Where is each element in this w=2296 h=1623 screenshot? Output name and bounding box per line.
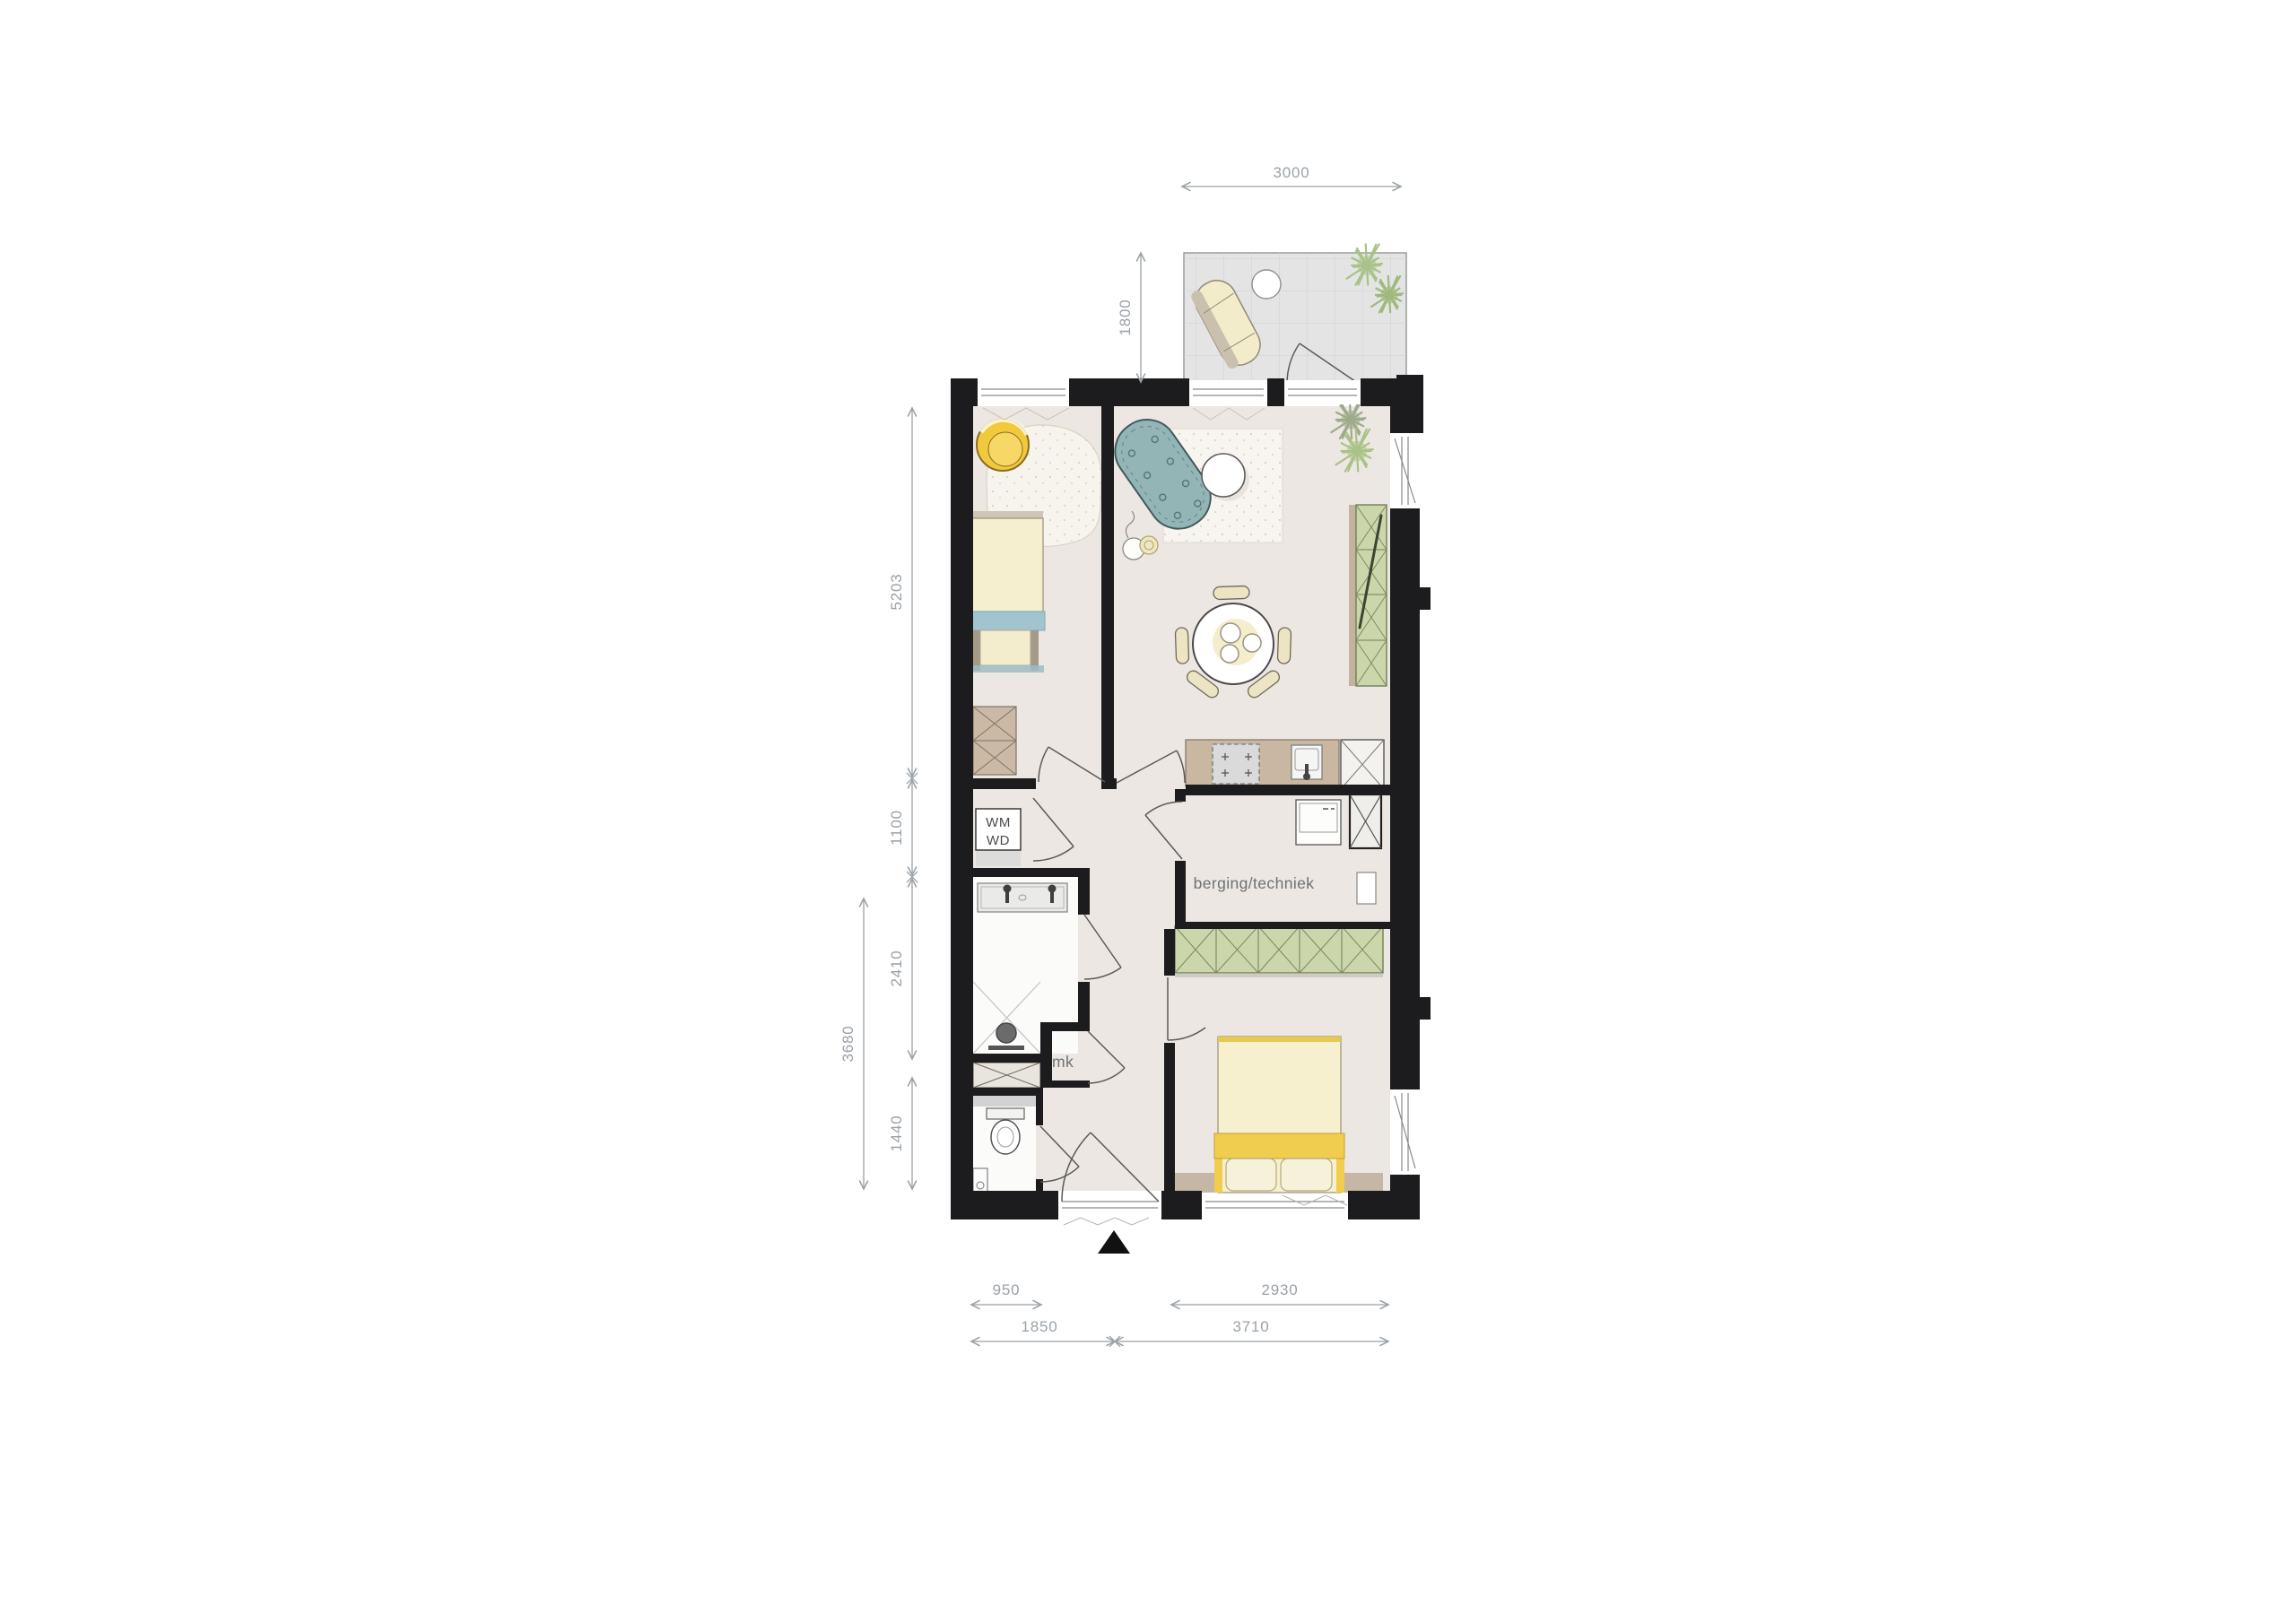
hand-basin-icon bbox=[973, 1168, 987, 1192]
dimension-label: 1800 bbox=[1117, 299, 1134, 335]
toilet-bowl-icon bbox=[991, 1120, 1020, 1154]
dimension-left-upper: 5203 bbox=[888, 408, 912, 777]
balcony-side-table bbox=[1252, 270, 1281, 299]
bedroom2-window-east bbox=[1392, 1089, 1418, 1175]
radiator-icon bbox=[1357, 872, 1376, 904]
bedroom1-bed bbox=[969, 511, 1045, 673]
wall-living-south bbox=[1186, 785, 1390, 795]
utility-hatch bbox=[973, 1063, 1040, 1088]
dimension-label: 1850 bbox=[1021, 1318, 1057, 1335]
coffee-table bbox=[1202, 454, 1245, 497]
dimension-bedroom-total: 3710 bbox=[1115, 1318, 1388, 1341]
floor-plan-drawing: WM WD bbox=[0, 0, 2296, 1623]
shaft-icon bbox=[1350, 794, 1381, 848]
tall-cabinet bbox=[1349, 505, 1387, 686]
washer-dryer-label: WD bbox=[987, 833, 1010, 848]
dimension-balcony-depth: 1800 bbox=[1117, 253, 1141, 382]
dimension-label: 3710 bbox=[1232, 1318, 1269, 1335]
bedroom1-wardrobe bbox=[973, 707, 1016, 775]
wall-west bbox=[951, 378, 973, 1219]
shower-head-icon bbox=[996, 1023, 1016, 1043]
wall-south bbox=[951, 1191, 1058, 1219]
pillow bbox=[1226, 1159, 1276, 1191]
wall-storage-south bbox=[1175, 922, 1390, 929]
dimension-left-toilet: 1440 bbox=[888, 1078, 912, 1189]
north-arrow-icon bbox=[1098, 1230, 1130, 1254]
bedroom2-wardrobe bbox=[1175, 926, 1383, 977]
appliance-icon bbox=[1296, 800, 1341, 845]
dimension-label: 3000 bbox=[1273, 164, 1309, 181]
wall-bathroom-north bbox=[973, 868, 1090, 877]
dimension-left-bathroom: 2410 bbox=[888, 879, 912, 1059]
balcony-door bbox=[1284, 380, 1361, 404]
bathroom-sink bbox=[978, 883, 1067, 912]
dimension-label: 2930 bbox=[1261, 1281, 1298, 1298]
bedroom2-bed bbox=[1214, 1037, 1344, 1193]
wall-bedroom1-living bbox=[1101, 406, 1114, 783]
living-window-east bbox=[1392, 433, 1418, 508]
dimension-balcony-width: 3000 bbox=[1182, 164, 1401, 187]
washing-machine-label: WM bbox=[986, 815, 1011, 830]
wall-north bbox=[1069, 378, 1189, 406]
sink-icon bbox=[1291, 745, 1322, 780]
dimension-left-lower-total: 3680 bbox=[839, 898, 864, 1189]
wall-east bbox=[1390, 508, 1420, 1089]
washer-dryer-closet: WM WD bbox=[976, 809, 1021, 866]
dimension-label: 5203 bbox=[888, 573, 905, 610]
bedroom2-window-south bbox=[1202, 1193, 1348, 1217]
dimension-label: 1440 bbox=[888, 1115, 905, 1151]
cooktop-icon bbox=[1213, 744, 1259, 784]
balcony bbox=[1184, 244, 1406, 384]
dimension-entry-total: 1850 bbox=[971, 1318, 1115, 1341]
floor-plan-page: WM WD bbox=[0, 0, 2296, 1623]
refrigerator-icon bbox=[1341, 740, 1384, 789]
dimension-bedroom-width: 2930 bbox=[1171, 1281, 1388, 1305]
dimension-label: 950 bbox=[993, 1281, 1021, 1298]
entrance-door bbox=[1058, 1193, 1161, 1225]
pillow bbox=[1281, 1159, 1332, 1191]
dimension-toilet-width: 950 bbox=[971, 1281, 1041, 1305]
bedroom1-armchair bbox=[977, 419, 1029, 471]
meter-cupboard-label: mk bbox=[1052, 1053, 1074, 1071]
dimension-label: 2410 bbox=[888, 950, 905, 986]
dimension-label: 3680 bbox=[839, 1025, 857, 1062]
dimension-label: 1100 bbox=[888, 810, 905, 846]
storage-room-label: berging/techniek bbox=[1194, 874, 1315, 892]
dimension-left-hall: 1100 bbox=[888, 780, 912, 875]
